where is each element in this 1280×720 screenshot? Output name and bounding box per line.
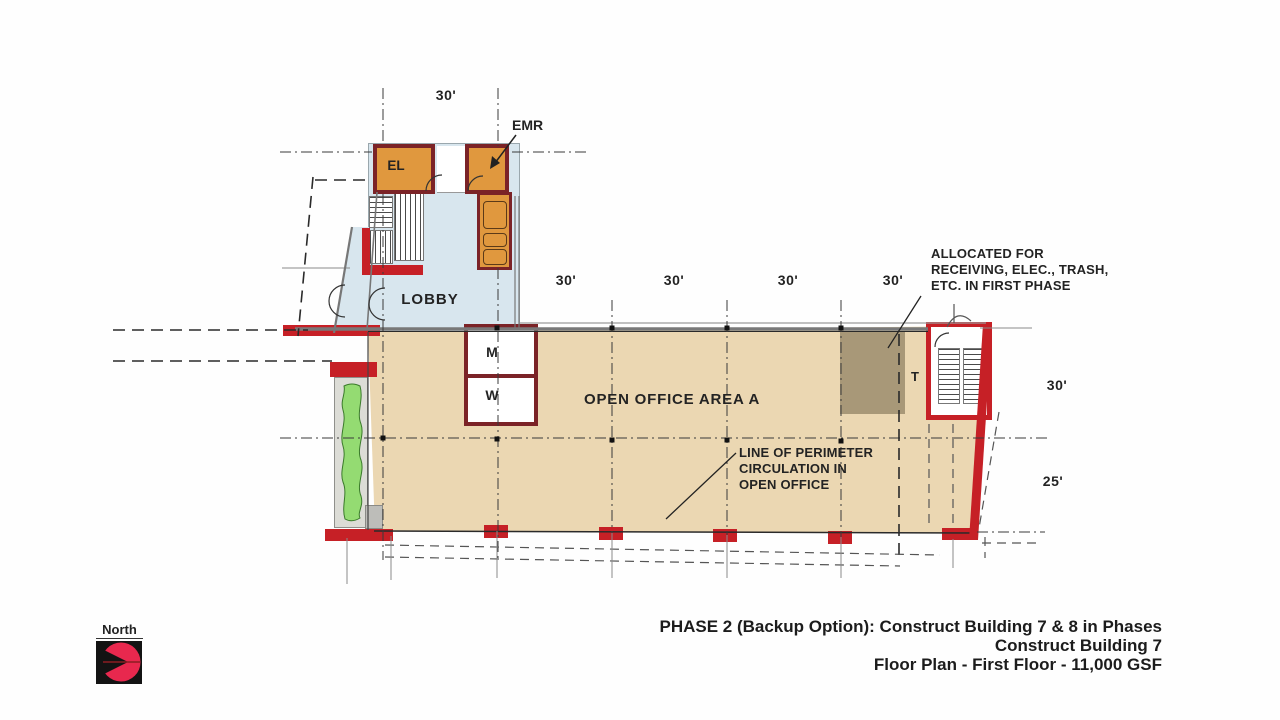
dim-right-lower: 25' xyxy=(1023,473,1083,489)
wall-red xyxy=(365,265,423,275)
label-open-office: OPEN OFFICE AREA A xyxy=(584,391,760,408)
dim-bay-4: 30' xyxy=(863,272,923,288)
lobby-stair-landing xyxy=(369,196,393,228)
equipment-box xyxy=(483,233,507,247)
title-line-3: Floor Plan - First Floor - 11,000 GSF xyxy=(659,655,1162,674)
annotation-perimeter: LINE OF PERIMETER CIRCULATION IN OPEN OF… xyxy=(739,445,873,493)
title-line-1: PHASE 2 (Backup Option): Construct Build… xyxy=(659,617,1162,636)
planter-frame xyxy=(334,377,368,528)
column-red xyxy=(828,531,852,544)
wall-red xyxy=(330,362,377,377)
dim-bay-2: 30' xyxy=(644,272,704,288)
column-red xyxy=(599,527,623,540)
wall-corner-red xyxy=(942,528,977,540)
title-line-2: Construct Building 7 xyxy=(659,636,1162,655)
drawing-title-block: PHASE 2 (Backup Option): Construct Build… xyxy=(659,617,1162,674)
label-toilet: T xyxy=(903,369,927,384)
emr-closet xyxy=(477,192,512,270)
column-red xyxy=(484,525,508,538)
emr-room xyxy=(465,144,509,194)
annotation-receiving: ALLOCATED FOR RECEIVING, ELEC., TRASH, E… xyxy=(931,246,1108,294)
wall-red xyxy=(325,529,393,541)
dim-top: 30' xyxy=(416,87,476,103)
east-stair-flight-right xyxy=(963,348,985,404)
lobby-stair-flight-right xyxy=(394,193,424,261)
column-red xyxy=(713,529,737,542)
dim-right-upper: 30' xyxy=(1027,377,1087,393)
north-arrow-icon xyxy=(96,641,142,684)
equipment-box xyxy=(483,201,507,229)
lobby-stair-flight-left xyxy=(369,230,393,264)
dim-bay-3: 30' xyxy=(758,272,818,288)
receiving-area xyxy=(840,332,905,414)
label-emr: EMR xyxy=(512,117,543,133)
label-mens-restroom: M xyxy=(480,344,504,360)
label-womens-restroom: W xyxy=(480,387,504,403)
dim-bay-1: 30' xyxy=(536,272,596,288)
equipment-box xyxy=(483,249,507,265)
east-stair-flight-left xyxy=(938,348,960,404)
wall-block-gray xyxy=(365,505,383,529)
north-label: North xyxy=(96,622,143,639)
floor-plan-canvas: 30' 30' 30' 30' 30' 30' 25' EL EMR LOBBY… xyxy=(0,0,1280,720)
label-elevator: EL xyxy=(381,158,411,173)
elevator-lobby-gap xyxy=(437,146,465,193)
label-lobby: LOBBY xyxy=(395,291,465,308)
restroom-divider-wall xyxy=(468,374,534,378)
restrooms-box xyxy=(464,324,538,426)
wall-red xyxy=(283,325,380,336)
